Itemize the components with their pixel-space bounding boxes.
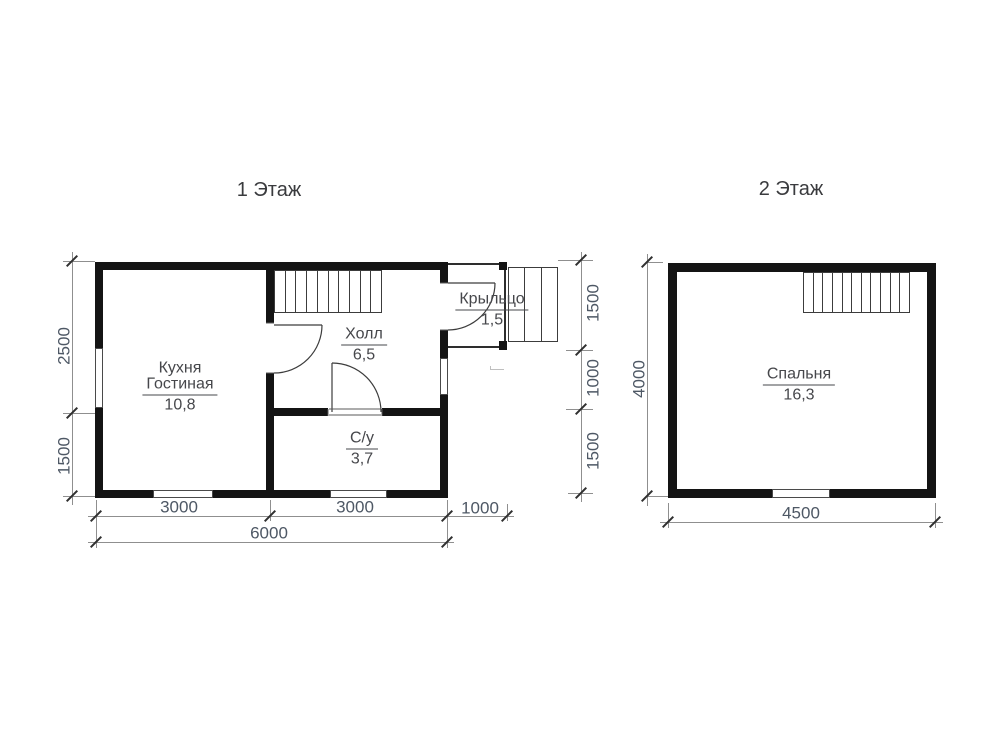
room-label-bedroom: Спальня 16,3 (763, 367, 835, 404)
room-label-bathroom: С/у 3,7 (346, 431, 378, 468)
floor1-right-dim-line (581, 252, 582, 502)
room-name-bathroom: С/у (346, 431, 378, 450)
dim-label-bottom-left: 3000 (160, 499, 198, 516)
floor2-bottom-ext-left (668, 503, 669, 528)
dim-label-right-middle: 1000 (585, 359, 602, 397)
floor2-bottom-ext-right (935, 503, 936, 528)
bathroom-door-arc (332, 363, 381, 412)
floor2-left-ext-top (647, 262, 663, 263)
floor2-left-ext-bottom (647, 496, 668, 497)
dim-label-floor2-left: 4000 (631, 360, 648, 398)
room-area-bedroom: 16,3 (763, 386, 835, 404)
room-area-hall: 6,5 (341, 346, 387, 364)
room-name-kitchen-living: Кухня Гостиная (142, 361, 217, 396)
room-name-line2: Гостиная (146, 377, 213, 393)
dim-label-bottom-porch: 1000 (461, 500, 499, 517)
room-name-bedroom: Спальня (763, 367, 835, 386)
room-area-bathroom: 3,7 (346, 450, 378, 468)
floor1-right-ext-1 (558, 260, 593, 261)
floor1-bottom-dim-row1 (88, 516, 514, 517)
print-artifact (490, 369, 504, 370)
dim-label-left-lower: 1500 (56, 437, 73, 475)
dim-label-right-lower: 1500 (585, 432, 602, 470)
print-artifact (490, 366, 491, 370)
floor1-bottom-ext-2 (270, 500, 271, 521)
room-label-hall: Холл 6,5 (341, 327, 387, 364)
dim-label-bottom-right: 3000 (336, 499, 374, 516)
dim-label-left-upper: 2500 (56, 327, 73, 365)
room-name-hall: Холл (341, 327, 387, 346)
room-area-kitchen-living: 10,8 (142, 396, 217, 414)
dim-label-right-upper: 1500 (585, 284, 602, 322)
room-label-kitchen-living: Кухня Гостиная 10,8 (142, 361, 217, 414)
dim-label-floor2-bottom: 4500 (782, 505, 820, 522)
floorplan-canvas: 1 Этаж 2 Этаж (0, 0, 1000, 750)
room-label-porch: Крыльцо 1,5 (455, 292, 528, 329)
dim-label-bottom-total: 6000 (250, 525, 288, 542)
room-area-porch: 1,5 (455, 311, 528, 329)
room-name-porch: Крыльцо (455, 292, 528, 311)
room-name-line1: Кухня (146, 361, 213, 377)
kitchen-door-arc (274, 325, 322, 373)
